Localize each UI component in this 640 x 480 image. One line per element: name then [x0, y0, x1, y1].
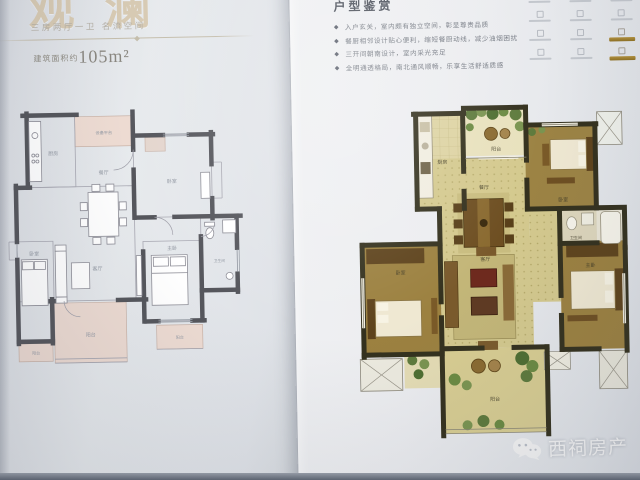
room-label: 阳台 [176, 334, 184, 340]
feature-icon [563, 29, 600, 43]
room-label: 阳台 [491, 146, 501, 153]
watermark: 西祠房产 [512, 432, 629, 463]
room-label: 餐厅 [479, 184, 489, 191]
photo-left-shadow [0, 0, 10, 480]
room-label: 主卧 [167, 245, 177, 252]
room-label: 阳台 [490, 396, 500, 403]
room-label: 卫生间 [214, 258, 226, 263]
room-label: 客厅 [92, 265, 102, 272]
area-prefix: 建筑面积约 [33, 54, 78, 64]
feature-icon [603, 0, 640, 4]
left-page: 观澜 三房两厅一卫 名流空间 建筑面积约105m² [0, 0, 298, 480]
feature-icon [521, 0, 558, 5]
feature-icon-highlighted [604, 47, 640, 61]
room-label: 厨房 [48, 150, 58, 157]
diamond-ornament [134, 35, 140, 41]
room-label: 卧室 [167, 178, 177, 185]
feature-icon [522, 48, 559, 62]
room-label: 卧室 [396, 269, 406, 276]
right-floorplan: 厨房 阳台 卧室 餐厅 客厅 卧室 主卧 卫生间 阳台 [349, 98, 631, 443]
right-page: 户型鉴赏 ◆入户玄关，室内颇有独立空间，彰显尊贵品质 ◆餐厨相邻设计贴心便利，缩… [288, 0, 640, 480]
watermark-text: 西祠房产 [548, 432, 629, 462]
feature-icon-highlighted [603, 28, 640, 42]
wechat-icon [512, 435, 543, 462]
brochure-photo: 观澜 三房两厅一卫 名流空间 建筑面积约105m² [0, 0, 640, 480]
room-label: 客厅 [480, 256, 490, 263]
diamond-bullet-icon: ◆ [334, 25, 339, 33]
diamond-bullet-icon: ◆ [334, 52, 339, 60]
feature-icon [563, 48, 600, 62]
room-label: 卫生间 [570, 234, 582, 240]
room-label: 卧室 [558, 196, 568, 203]
bullet-item: ◆全明通透格局，南北通风顺畅，乐享生活舒适质感 [335, 62, 565, 75]
photo-bottom-edge [0, 473, 640, 480]
area-value: 105m² [78, 46, 130, 67]
diamond-bullet-icon: ◆ [335, 66, 340, 74]
room-label: 阳台 [86, 331, 96, 338]
feature-icon [522, 10, 559, 24]
feature-icon [562, 10, 599, 24]
area-text: 建筑面积约105m² [33, 46, 130, 69]
room-label: 餐厅 [99, 169, 109, 176]
feature-icon [562, 0, 599, 4]
room-label: 厨房 [437, 159, 447, 166]
room-label: 卧室 [29, 250, 39, 257]
feature-icon [603, 9, 640, 23]
divider-rule [0, 35, 255, 41]
page-subtitle: 三房两厅一卫 名流空间 [31, 19, 146, 33]
room-label: 主卧 [585, 262, 595, 269]
brochure-spread: 观澜 三房两厅一卫 名流空间 建筑面积约105m² [0, 0, 640, 480]
feature-grid [521, 0, 640, 62]
diamond-bullet-icon: ◆ [334, 38, 339, 46]
left-floorplan: 厨房 设备平台 餐厅 卧室 卫生间 客厅 主卧 卧室 阳台 阳台 阳台 [2, 87, 264, 408]
feature-icon [522, 29, 559, 43]
room-label: 阳台 [32, 349, 40, 355]
